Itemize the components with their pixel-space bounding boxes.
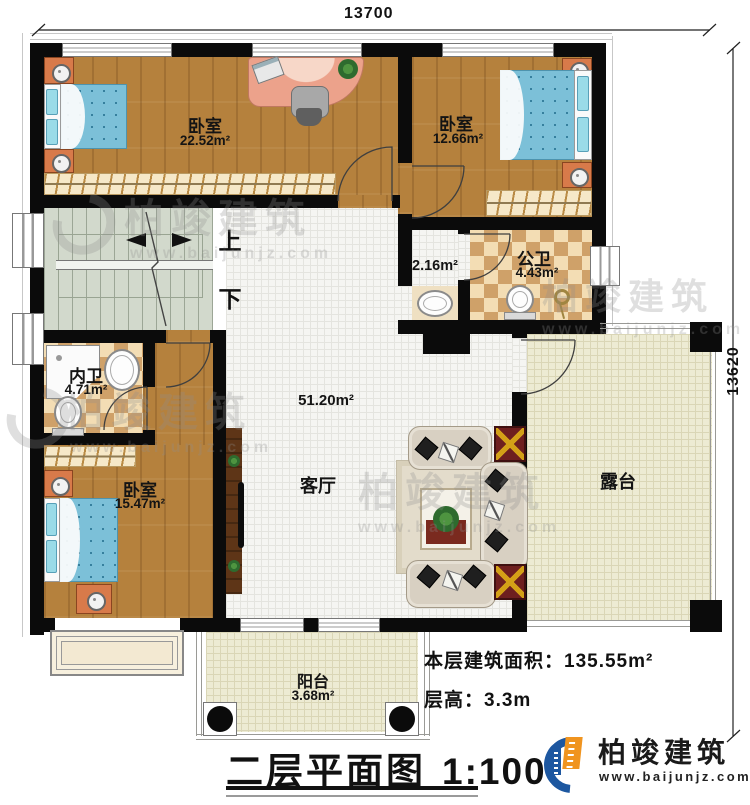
terrace-railing bbox=[527, 620, 716, 621]
pillow bbox=[46, 540, 57, 573]
watermark: 柏竣建筑 www.baijunjz.com bbox=[52, 186, 332, 263]
wall bbox=[398, 217, 606, 230]
terrace-railing bbox=[710, 323, 711, 628]
toilet-tank bbox=[504, 312, 536, 320]
tv bbox=[238, 482, 244, 548]
wall bbox=[180, 618, 226, 632]
window bbox=[240, 618, 304, 632]
balcony-railing bbox=[196, 739, 430, 740]
desk-chair bbox=[296, 108, 322, 126]
terrace-label: 露台 bbox=[600, 468, 636, 494]
wall bbox=[30, 330, 166, 343]
window bbox=[12, 213, 44, 268]
wall bbox=[398, 43, 412, 163]
balcony-area: 3.68m² bbox=[292, 688, 335, 703]
logo-building-icon bbox=[562, 737, 582, 769]
toilet bbox=[506, 285, 534, 314]
bedroom1-area: 22.52m² bbox=[180, 133, 230, 148]
window bbox=[12, 313, 44, 365]
bedroom3-area: 15.47m² bbox=[115, 496, 165, 511]
floor-height-value: 3.3m bbox=[484, 690, 531, 711]
roof-edge-line bbox=[30, 39, 612, 40]
watermark: 柏竣建筑 www.baijunjz.com bbox=[542, 268, 744, 339]
watermark: 柏竣建筑 www.baijunjz.com bbox=[6, 380, 272, 457]
balcony-railing bbox=[201, 632, 202, 736]
pillow bbox=[46, 89, 58, 115]
pillow bbox=[577, 117, 589, 152]
living-room-area: 51.20m² bbox=[298, 392, 354, 409]
pillow bbox=[46, 503, 57, 536]
window bbox=[252, 43, 362, 57]
plant-icon bbox=[338, 59, 358, 79]
dimension-right: 13620 bbox=[725, 333, 743, 409]
door-threshold bbox=[458, 234, 470, 280]
plant-icon bbox=[228, 560, 240, 572]
wall bbox=[398, 228, 412, 286]
floor-area-value: 135.55m² bbox=[564, 651, 653, 672]
bay-window bbox=[50, 630, 184, 676]
door-threshold bbox=[166, 330, 210, 343]
vanity-sink bbox=[417, 290, 453, 317]
side-table bbox=[494, 564, 526, 600]
wall bbox=[458, 280, 470, 322]
logo-building-icon bbox=[552, 747, 561, 775]
wall bbox=[226, 618, 240, 632]
floor-height-label: 层高： bbox=[424, 690, 484, 711]
floor-plan: 卧室 22.52m² 卧室 12.66m² 卧室 15.47m² 公卫 4.43… bbox=[0, 0, 750, 805]
pillow bbox=[577, 76, 589, 111]
title-underline bbox=[226, 786, 478, 790]
wardrobe bbox=[486, 190, 592, 216]
door-threshold bbox=[338, 195, 392, 208]
nightstand bbox=[44, 149, 74, 173]
balcony-door bbox=[318, 618, 380, 632]
nightstand bbox=[562, 162, 592, 188]
vanity-area: 2.16m² bbox=[412, 258, 458, 274]
pillow bbox=[46, 119, 58, 145]
bedroom2-area: 12.66m² bbox=[433, 131, 483, 146]
wall bbox=[458, 228, 470, 234]
nightstand bbox=[76, 584, 112, 614]
terrace-railing bbox=[715, 323, 716, 628]
balcony-railing bbox=[196, 632, 197, 736]
door-threshold bbox=[512, 338, 527, 392]
balcony-column bbox=[385, 702, 419, 736]
floor-info: 本层建筑面积：135.55m² 层高：3.3m bbox=[424, 646, 653, 724]
roof-edge-line bbox=[30, 33, 612, 34]
side-table bbox=[494, 426, 526, 462]
brand-logo: 柏竣建筑 www.baijunjz.com bbox=[544, 729, 750, 799]
watermark: 柏竣建筑 www.baijunjz.com bbox=[358, 460, 560, 537]
wall bbox=[512, 320, 527, 338]
terrace-railing bbox=[527, 626, 716, 627]
wall bbox=[304, 618, 318, 632]
wall bbox=[213, 330, 226, 632]
shower-drain bbox=[56, 355, 62, 361]
door-threshold bbox=[398, 163, 412, 214]
dimension-top: 13700 bbox=[344, 5, 394, 23]
window bbox=[442, 43, 554, 57]
wall bbox=[380, 618, 526, 632]
title-underline bbox=[226, 795, 478, 797]
brand-name: 柏竣建筑 bbox=[598, 731, 730, 771]
wall bbox=[423, 334, 470, 354]
nightstand bbox=[44, 470, 73, 497]
balcony-column bbox=[203, 702, 237, 736]
stairs-down-label: 下 bbox=[219, 280, 242, 314]
terrace-column bbox=[690, 600, 722, 632]
wall bbox=[392, 195, 400, 208]
living-room-label: 客厅 bbox=[300, 472, 336, 498]
floor-area-label: 本层建筑面积： bbox=[424, 651, 564, 672]
nightstand bbox=[44, 57, 74, 84]
window bbox=[62, 43, 172, 57]
brand-url: www.baijunjz.com bbox=[599, 769, 750, 784]
wall bbox=[592, 43, 606, 246]
